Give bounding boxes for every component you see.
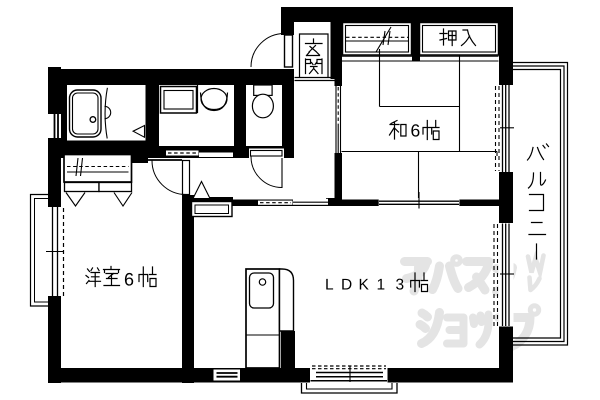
svg-text:L: L (325, 277, 334, 294)
svg-text:1: 1 (377, 277, 386, 294)
svg-text:D: D (341, 277, 352, 294)
svg-text:3: 3 (396, 277, 405, 294)
svg-text:6: 6 (124, 270, 134, 290)
svg-text:K: K (359, 277, 370, 294)
svg-text:6: 6 (411, 121, 421, 141)
